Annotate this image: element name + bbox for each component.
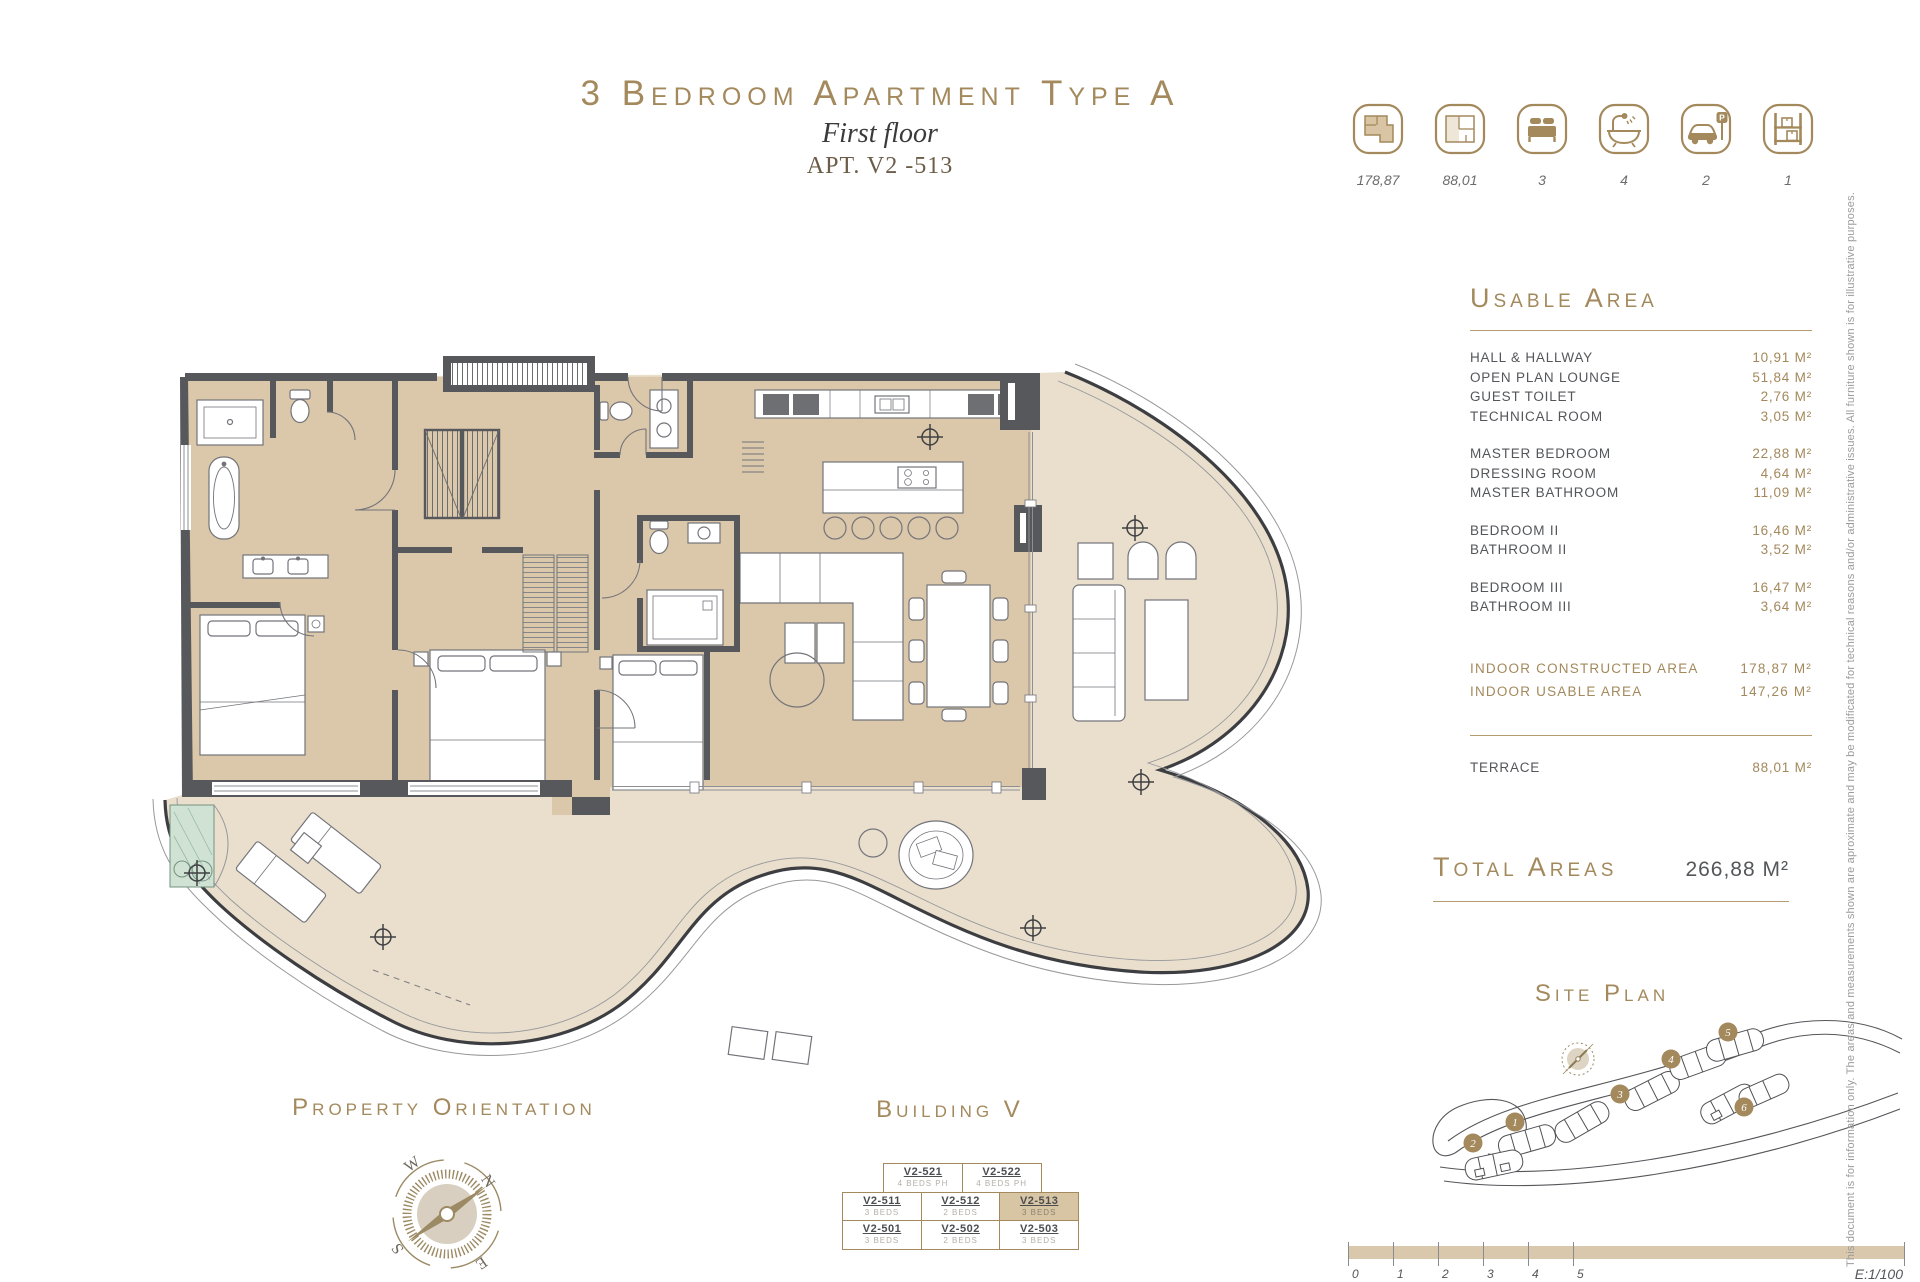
page-subtitle: First floor [430,118,1330,150]
storage-icon [1761,102,1815,156]
building-unit-grid: V2-521 4 BEDS PH V2-522 4 BEDS PH V2-511… [842,1163,1080,1255]
svg-text:5: 5 [1725,1027,1731,1039]
property-orientation-heading: Property Orientation [274,1094,614,1122]
scale-tick-label: 3 [1487,1267,1494,1281]
usable-area-table: HALL & HALLWAY10,91 M² OPEN PLAN LOUNGE5… [1470,350,1812,779]
site-compass [1562,1043,1594,1075]
svg-text:1: 1 [1512,1117,1518,1129]
bedrooms-icon [1515,102,1569,156]
site-marker-2: 2 [1464,1134,1483,1153]
table-row: TECHNICAL ROOM3,05 M² [1470,409,1812,429]
table-row: DRESSING ROOM4,64 M² [1470,466,1812,486]
bathroom2-toilet [650,531,668,554]
site-plan-heading: Site Plan [1432,980,1772,1008]
bathrooms-icon [1597,102,1651,156]
indoor-area-plan-icon [1351,102,1405,156]
compass-rose: N W S E [362,1132,532,1280]
wardrobe [523,555,554,652]
bathrooms-count: 4 [1620,172,1628,188]
table-row: BEDROOM III16,47 M² [1470,580,1812,600]
site-marker-3: 3 [1611,1085,1630,1104]
table-row: HALL & HALLWAY10,91 M² [1470,350,1812,370]
kitchen-island [823,462,963,513]
usable-area-heading: Usable Area [1470,283,1658,314]
total-areas-value: 266,88 M² [1685,858,1789,882]
terrace-armchair [1128,542,1158,579]
disclaimer-text: This document is for information only. T… [1845,15,1857,1267]
table-row: OPEN PLAN LOUNGE51,84 M² [1470,370,1812,390]
unit-cell-v2-522: V2-522 4 BEDS PH [962,1163,1042,1193]
unit-cell-v2-521: V2-521 4 BEDS PH [883,1163,963,1193]
svg-text:6: 6 [1741,1102,1747,1114]
unit-cell-v2-502: V2-502 2 BEDS [921,1220,1001,1250]
terrace-armchair [1166,542,1196,579]
area-summary: INDOOR CONSTRUCTED AREA178,87 M² INDOOR … [1470,661,1812,707]
terrace-area-value: 88,01 [1442,172,1477,188]
svg-text:2: 2 [1470,1138,1476,1150]
parking-icon: P [1679,102,1733,156]
total-areas: Total Areas 266,88 M² [1433,852,1789,883]
site-marker-5: 5 [1719,1023,1738,1042]
terrace-area-plan-icon [1433,102,1487,156]
table-row: BATHROOM II3,52 M² [1470,542,1812,562]
page-title: 3 Bedroom Apartment Type A [430,74,1330,114]
bathroom2-bathtub [647,590,723,645]
legend-item-indoor-area: 178,87 [1351,102,1405,188]
scale-tick-label: 4 [1532,1267,1539,1281]
apartment-number: APT. V2 -513 [430,153,1330,180]
svg-text:P: P [1719,113,1725,123]
terrace-row: TERRACE88,01 M² [1470,760,1812,780]
legend-item-bathrooms: 4 [1597,102,1651,188]
scale-tick-label: 1 [1397,1267,1404,1281]
table-row: MASTER BEDROOM22,88 M² [1470,446,1812,466]
site-marker-6: 6 [1735,1098,1754,1117]
scale-tick-label: 5 [1577,1267,1584,1281]
legend-item-terrace-area: 88,01 [1433,102,1487,188]
indoor-area-value: 178,87 [1357,172,1400,188]
table-row: BATHROOM III3,64 M² [1470,599,1812,619]
unit-cell-v2-512: V2-512 2 BEDS [921,1192,1001,1222]
cardinal-e: E [472,1253,490,1273]
legend-item-parking: P 2 [1679,102,1733,188]
table-row: MASTER BATHROOM11,09 M² [1470,485,1812,505]
parking-count: 2 [1702,172,1710,188]
unit-cell-v2-511: V2-511 3 BEDS [842,1192,922,1222]
table-row: INDOOR USABLE AREA147,26 M² [1470,684,1812,707]
wardrobe [557,555,588,652]
legend-item-bedrooms: 3 [1515,102,1569,188]
building-v-heading: Building V [780,1096,1120,1124]
title-block: 3 Bedroom Apartment Type A First floor A… [430,74,1330,180]
table-row: INDOOR CONSTRUCTED AREA178,87 M² [1470,661,1812,684]
unit-cell-v2-503: V2-503 3 BEDS [999,1220,1079,1250]
bedrooms-count: 3 [1538,172,1546,188]
storage-count: 1 [1784,172,1792,188]
site-plan-map: 1 2 3 4 5 6 [1430,1005,1910,1230]
legend-icon-row: 178,87 88,01 3 [1351,102,1815,188]
svg-text:4: 4 [1668,1054,1674,1066]
scale-bar-fill [1348,1246,1905,1259]
stair-hatch [451,363,587,385]
scale-tick-label: 0 [1352,1267,1359,1281]
divider [1470,330,1812,331]
unit-cell-v2-513-highlighted: V2-513 3 BEDS [999,1192,1079,1222]
terrace-table [1145,600,1188,700]
divider [1433,901,1789,902]
site-marker-4: 4 [1662,1050,1681,1069]
unit-cell-v2-501: V2-501 3 BEDS [842,1220,922,1250]
legend-item-storage: 1 [1761,102,1815,188]
table-row: BEDROOM II16,46 M² [1470,523,1812,543]
dining-table [927,585,990,707]
scale-tick-label: 2 [1442,1267,1449,1281]
floorplan-brochure-page: { "title": { "main": "3 Bedroom Apartmen… [0,0,1920,1280]
guest-toilet [290,390,310,399]
table-row: GUEST TOILET2,76 M² [1470,389,1812,409]
cardinal-s: S [388,1240,407,1257]
svg-text:3: 3 [1616,1089,1623,1101]
scale-bar: 0 1 2 3 4 5 E:1/100 [1348,1242,1905,1282]
cardinal-w: W [401,1153,424,1176]
total-areas-heading: Total Areas [1433,852,1617,883]
divider [1470,735,1812,736]
site-marker-1: 1 [1506,1113,1525,1132]
floor-plan-drawing [130,350,1330,1080]
